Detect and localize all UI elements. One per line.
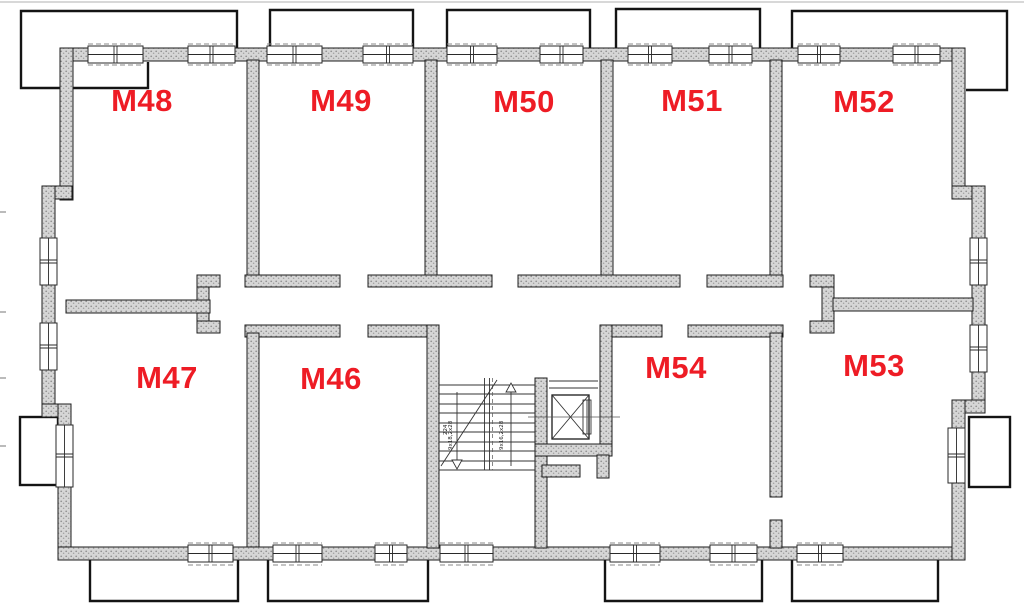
- window: [710, 543, 757, 565]
- room-label-m54: M54: [645, 350, 707, 386]
- balcony: [90, 556, 238, 601]
- window: [188, 44, 235, 65]
- stair-level-note: 224: [443, 424, 449, 435]
- stair-riser-note: 9x16,2x28: [499, 420, 505, 450]
- balcony: [792, 556, 938, 601]
- balcony: [616, 9, 760, 49]
- room-label-m52: M52: [833, 84, 895, 120]
- window: [610, 543, 660, 565]
- balcony: [268, 556, 428, 601]
- balcony: [447, 10, 590, 49]
- room-label-m46: M46: [300, 361, 362, 397]
- window: [375, 543, 407, 565]
- balcony: [20, 417, 58, 485]
- room-label-m51: M51: [661, 83, 723, 119]
- window: [970, 325, 987, 372]
- staircase: 9x18,2x28 224 9x16,2x28: [439, 378, 535, 470]
- window: [40, 238, 57, 285]
- window: [56, 425, 73, 487]
- room-label-m47: M47: [136, 360, 198, 396]
- window: [893, 44, 940, 65]
- room-label-m48: M48: [111, 83, 173, 119]
- window: [540, 44, 583, 65]
- window: [798, 44, 840, 65]
- floor-plan: 9x18,2x28 224 9x16,2x28 M48 M49 M50 M51 …: [0, 0, 1024, 608]
- window: [88, 44, 143, 65]
- window: [267, 44, 322, 65]
- window: [948, 428, 965, 483]
- balcony: [969, 417, 1010, 487]
- balcony: [270, 10, 413, 49]
- balcony: [605, 556, 762, 601]
- window: [628, 44, 672, 65]
- room-label-m50: M50: [493, 84, 555, 120]
- window: [797, 543, 843, 565]
- window: [440, 543, 493, 565]
- interior-walls: [66, 60, 973, 548]
- room-label-m53: M53: [843, 348, 905, 384]
- window: [273, 543, 322, 565]
- room-label-m49: M49: [310, 83, 372, 119]
- window: [970, 238, 987, 285]
- window: [363, 44, 413, 65]
- window: [188, 543, 233, 565]
- stair-arrow-down-head: [452, 460, 462, 469]
- stair-arrow-up-head: [506, 383, 516, 392]
- window: [40, 323, 57, 370]
- window: [447, 44, 497, 65]
- window: [709, 44, 752, 65]
